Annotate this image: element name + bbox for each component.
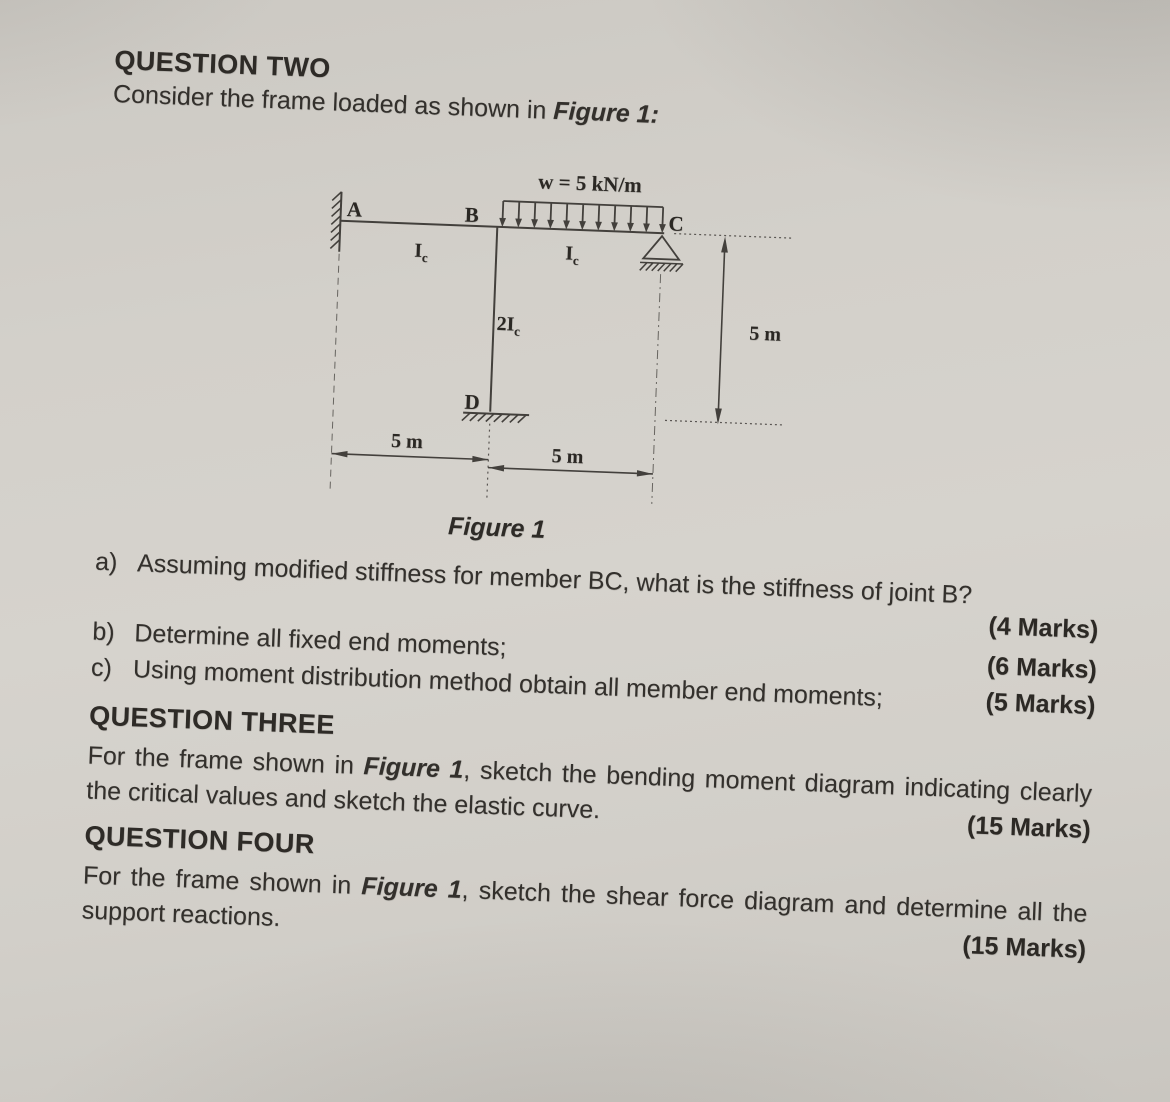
member-ab-label: Ic [414,240,429,266]
question-two-parts: a) Assuming modified stiffness for membe… [90,545,1100,723]
right-span-dimension: 5 m [488,443,654,478]
question-three-marks: (15 Marks) [966,811,1091,844]
q3-figure-reference: Figure 1 [363,752,464,784]
figure-reference: Figure 1: [553,97,660,129]
part-c-label: c) [90,651,133,687]
scanned-exam-page: QUESTION TWO Consider the frame loaded a… [0,0,1170,1102]
part-a-label: a) [95,545,138,581]
part-c-marks: (5 Marks) [985,685,1096,723]
q4-figure-reference: Figure 1 [361,872,462,904]
q4-text-before: For the frame shown in [83,861,362,900]
question-four-marks: (15 Marks) [962,931,1087,964]
load-value-label: w = 5 kN/m [538,169,643,197]
part-b-marks: (6 Marks) [986,649,1097,687]
pin-support-c [640,235,684,272]
fixed-support-d [462,413,529,424]
left-span-dimension: 5 m [331,428,489,463]
node-label-b: B [464,203,479,228]
node-label-a: A [346,197,363,222]
q3-text-before: For the frame shown in [87,741,364,780]
member-bc-label: Ic [565,242,580,268]
frame-diagram-svg: w = 5 kN/m [310,153,803,521]
right-span-label: 5 m [551,445,584,468]
distributed-load: w = 5 kN/m [499,168,668,233]
fixed-support-a [330,191,341,251]
part-b-label: b) [92,615,135,651]
part-a-marks: (4 Marks) [988,612,1099,644]
member-bd-label: 2Ic [496,313,521,339]
left-span-label: 5 m [391,430,424,453]
node-label-d: D [464,390,480,415]
height-dimension-label: 5 m [749,323,782,346]
node-label-c: C [668,211,684,236]
height-dimension: 5 m [714,236,785,426]
figure-1-diagram: w = 5 kN/m [310,153,803,521]
page-content: QUESTION TWO Consider the frame loaded a… [81,45,1119,967]
